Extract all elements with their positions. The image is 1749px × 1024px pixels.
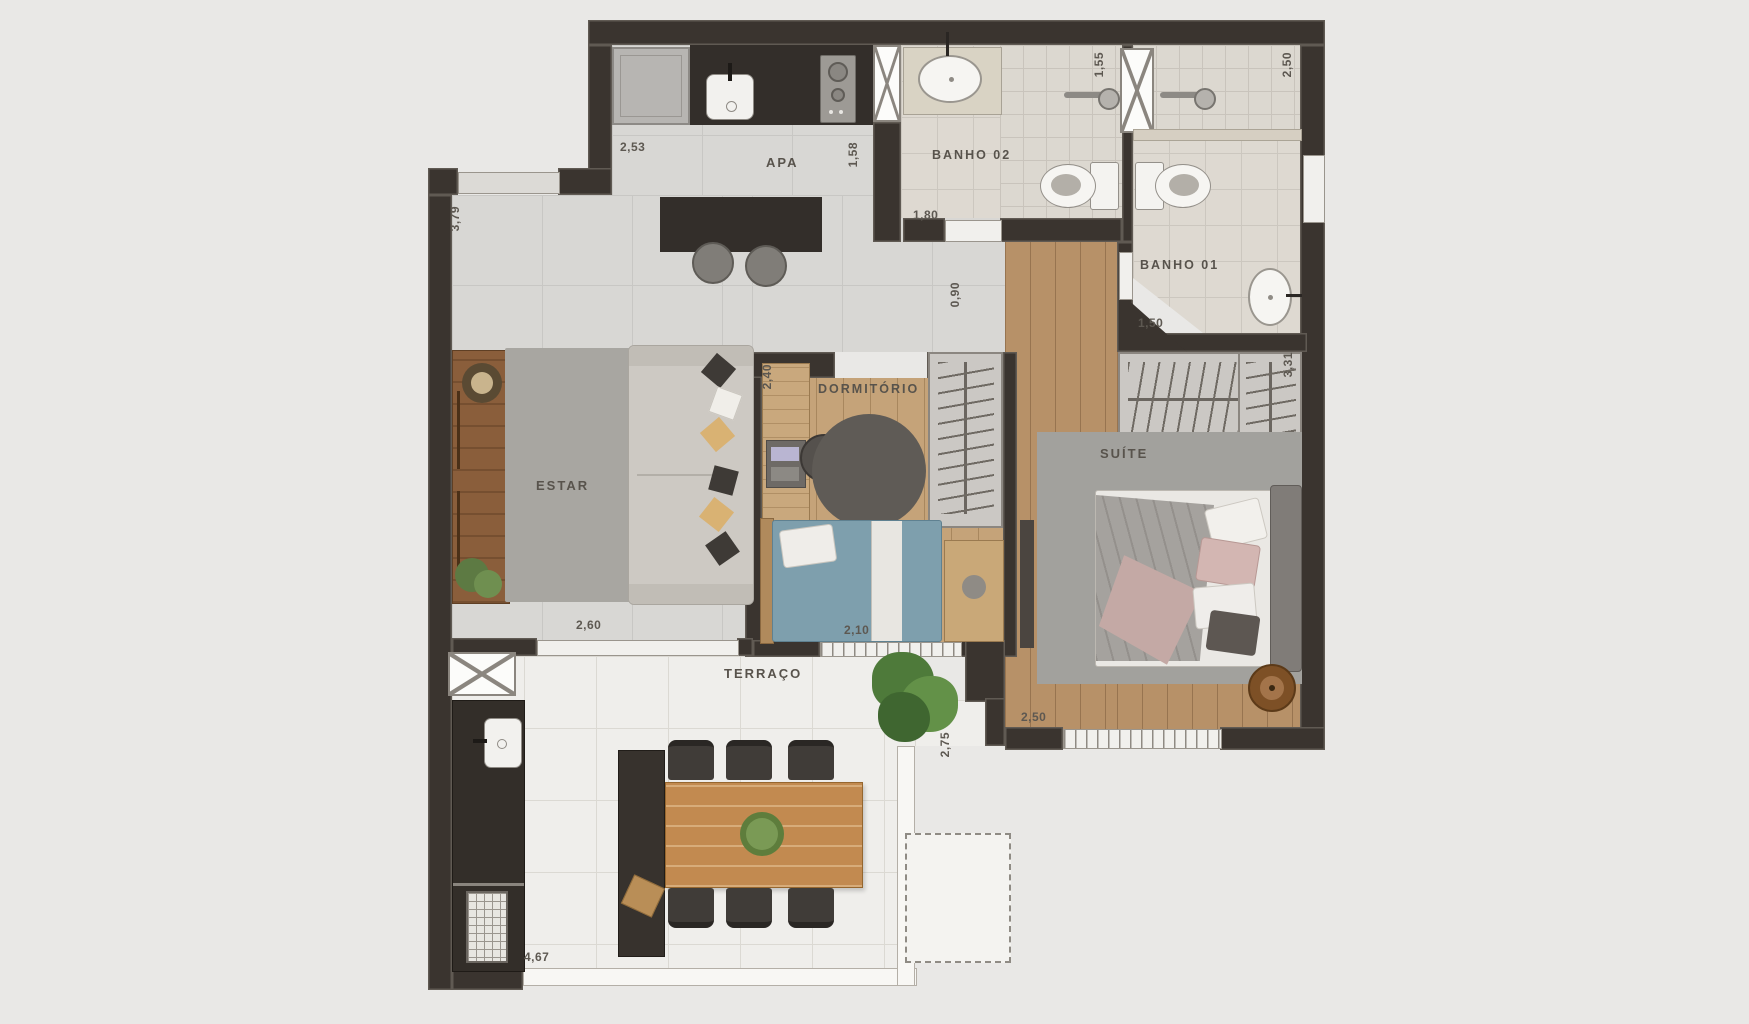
burner-large-icon [828, 62, 848, 82]
terrace-sink-drain [497, 739, 507, 749]
dim-dorm-window: 2,10 [844, 623, 869, 637]
dim-banho01-door: 1,50 [1138, 316, 1163, 330]
wall-suite-bottom-a [1005, 727, 1063, 750]
dim-banho02-door: 1,80 [913, 208, 938, 222]
wall-right [1300, 45, 1325, 750]
wall-living-terrace-b [737, 638, 753, 656]
bath1-toilet-seat [1169, 174, 1199, 196]
room-label-estar: ESTAR [536, 478, 589, 493]
bedside-table [944, 540, 1004, 642]
shaft-door [1303, 155, 1325, 223]
entry-door-opening [458, 172, 560, 194]
wall-bath2-bottom-b [1000, 218, 1122, 242]
terrace-sink [484, 718, 522, 768]
bath2-sink-icon [918, 55, 982, 103]
table-plant-icon [740, 812, 784, 856]
room-label-suite: SUÍTE [1100, 446, 1148, 461]
suite-window [1063, 729, 1222, 749]
wall-terrace-suite-b [985, 698, 1005, 746]
dim-suite-width: 2,50 [1021, 710, 1046, 724]
bath-window-icon [1120, 48, 1154, 133]
chair-bottom-3 [788, 888, 834, 928]
stool-1 [692, 242, 734, 284]
terrace-plant-leaf-3 [878, 692, 930, 742]
wall-terrace-suite-a [965, 640, 1005, 702]
chair-top-2 [726, 740, 772, 780]
room-label-banho01: BANHO 01 [1140, 258, 1219, 272]
bath2-door-opening [945, 220, 1002, 242]
sofa-seam [637, 474, 717, 476]
bedroom-round-rug [812, 414, 926, 528]
dim-estar-door: 2,60 [576, 618, 601, 632]
kitchen-sink-drain [726, 101, 737, 112]
suite-side-table-dot [1269, 685, 1275, 691]
dim-banho02-width: 1,55 [1092, 52, 1106, 77]
bath2-toilet-seat [1051, 174, 1081, 196]
suite-pillow-dark [1205, 610, 1260, 657]
cooktop-knob-2 [839, 110, 843, 114]
fridge-inner [620, 55, 682, 117]
room-label-apa: APA [766, 155, 798, 170]
wall-entry-corner [428, 168, 458, 195]
burner-small-icon [831, 88, 845, 102]
decor-bowl-icon [462, 363, 502, 403]
grill-grate-icon [466, 891, 508, 963]
bath1-shower-floor [1133, 45, 1302, 131]
sideboard-handle-2 [457, 491, 460, 569]
suite-bed-headboard [1270, 485, 1302, 672]
room-label-terraco: TERRAÇO [724, 666, 802, 681]
dim-closet-height: 3,31 [1281, 352, 1295, 377]
bath1-shower-head-icon [1194, 88, 1216, 110]
living-sliding-door [537, 640, 739, 656]
laptop-keyboard [771, 467, 799, 481]
chair-top-1 [668, 740, 714, 780]
bath1-door-opening [1119, 252, 1133, 300]
bath1-sink-drain [1268, 295, 1273, 300]
living-plant-icon-2 [474, 570, 502, 598]
decor-bowl-inner [471, 372, 493, 394]
cooktop-knob-1 [829, 110, 833, 114]
bath2-toilet-bowl [1040, 164, 1096, 208]
suite-bed [1095, 490, 1277, 667]
terrace-window-icon [448, 652, 516, 696]
suite-tv-rack [1020, 520, 1034, 648]
wall-entry-right [558, 168, 612, 195]
bedroom-wardrobe [928, 352, 1003, 528]
chair-bottom-2 [726, 888, 772, 928]
room-label-banho02: BANHO 02 [932, 148, 1011, 162]
dim-kitchen-depth: 1,58 [846, 142, 860, 167]
terrace-tap-icon [473, 739, 487, 743]
bedside-lamp-icon [962, 575, 986, 599]
bath2-shower-head-icon [1098, 88, 1120, 110]
cooktop [820, 55, 856, 123]
dim-hall-width: 0,90 [948, 282, 962, 307]
room-label-dormitorio: DORMITÓRIO [818, 382, 919, 396]
dim-dorm-width: 2,40 [760, 364, 774, 389]
bath1-tap-icon [1286, 294, 1302, 297]
bath2-sink-drain [949, 77, 954, 82]
wardrobe-hangers-icon [938, 362, 994, 514]
wall-suite-bottom-b [1220, 727, 1325, 750]
suite-pillow-pink-1 [1195, 537, 1261, 590]
dim-kitchen-width: 2,53 [620, 140, 645, 154]
projection-dashed-box [905, 833, 1011, 963]
wall-top [588, 20, 1325, 45]
single-bed-pillow [779, 523, 838, 568]
bath1-sink-icon [1248, 268, 1292, 326]
dim-terrace-depth: 2,75 [938, 732, 952, 757]
laptop-screen [771, 447, 799, 461]
wall-kitchen-bath2 [873, 122, 901, 242]
kitchen-island [660, 197, 822, 252]
dim-estar-height: 3,79 [448, 206, 462, 231]
terrace-railing-bottom [523, 968, 917, 986]
chair-bottom-1 [668, 888, 714, 928]
floor-plan: APA BANHO 02 BANHO 01 ESTAR DORMITÓRIO S… [0, 0, 1749, 1024]
bath1-shower-ledge [1133, 129, 1302, 141]
wall-bedroom-right [1003, 352, 1017, 657]
sofa-armrest-top [629, 346, 753, 366]
bath2-tap-icon [946, 32, 949, 56]
dim-banho01-shower: 2,50 [1280, 52, 1294, 77]
chair-top-3 [788, 740, 834, 780]
terrace-sideboard [618, 750, 665, 957]
fridge [612, 47, 690, 125]
stool-2 [745, 245, 787, 287]
sofa-armrest-bottom [629, 584, 753, 604]
single-bed-fold [871, 521, 902, 641]
kitchen-window-icon [873, 45, 901, 122]
kitchen-sink [706, 74, 754, 120]
suite-side-table [1248, 664, 1296, 712]
wall-left [428, 195, 452, 990]
grill-unit-divider [453, 883, 524, 886]
sideboard-handle-1 [457, 391, 460, 469]
kitchen-tap-icon [728, 63, 732, 81]
dim-terrace-width: 4,67 [524, 950, 549, 964]
bath1-toilet-bowl [1155, 164, 1211, 208]
